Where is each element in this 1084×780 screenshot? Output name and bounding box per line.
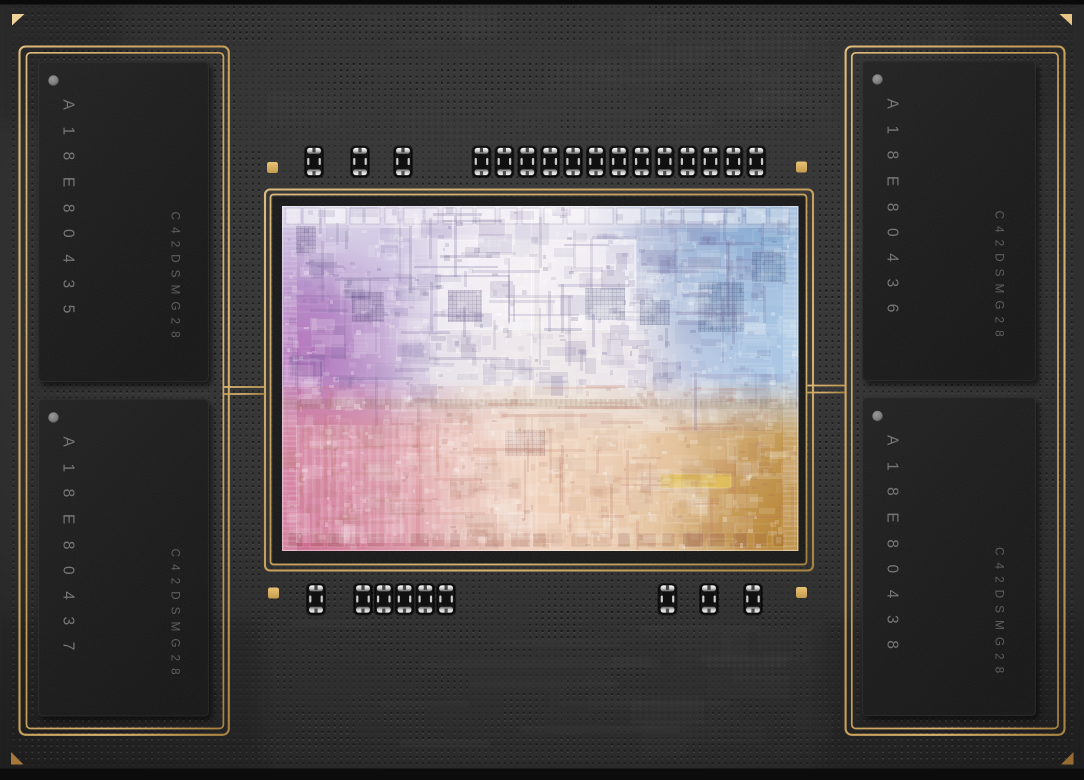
svg-text:A18E80438: A18E80438 — [884, 435, 901, 665]
svg-text:A18E80437: A18E80437 — [60, 437, 77, 667]
svg-text:C42DSMG28: C42DSMG28 — [993, 547, 1007, 680]
svg-text:C42DSMG28: C42DSMG28 — [993, 211, 1007, 344]
svg-text:C42DSMG28: C42DSMG28 — [169, 212, 183, 345]
svg-text:C42DSMG28: C42DSMG28 — [169, 549, 183, 682]
svg-text:A18E80436: A18E80436 — [884, 99, 901, 329]
svg-text:A18E80435: A18E80435 — [60, 100, 77, 330]
